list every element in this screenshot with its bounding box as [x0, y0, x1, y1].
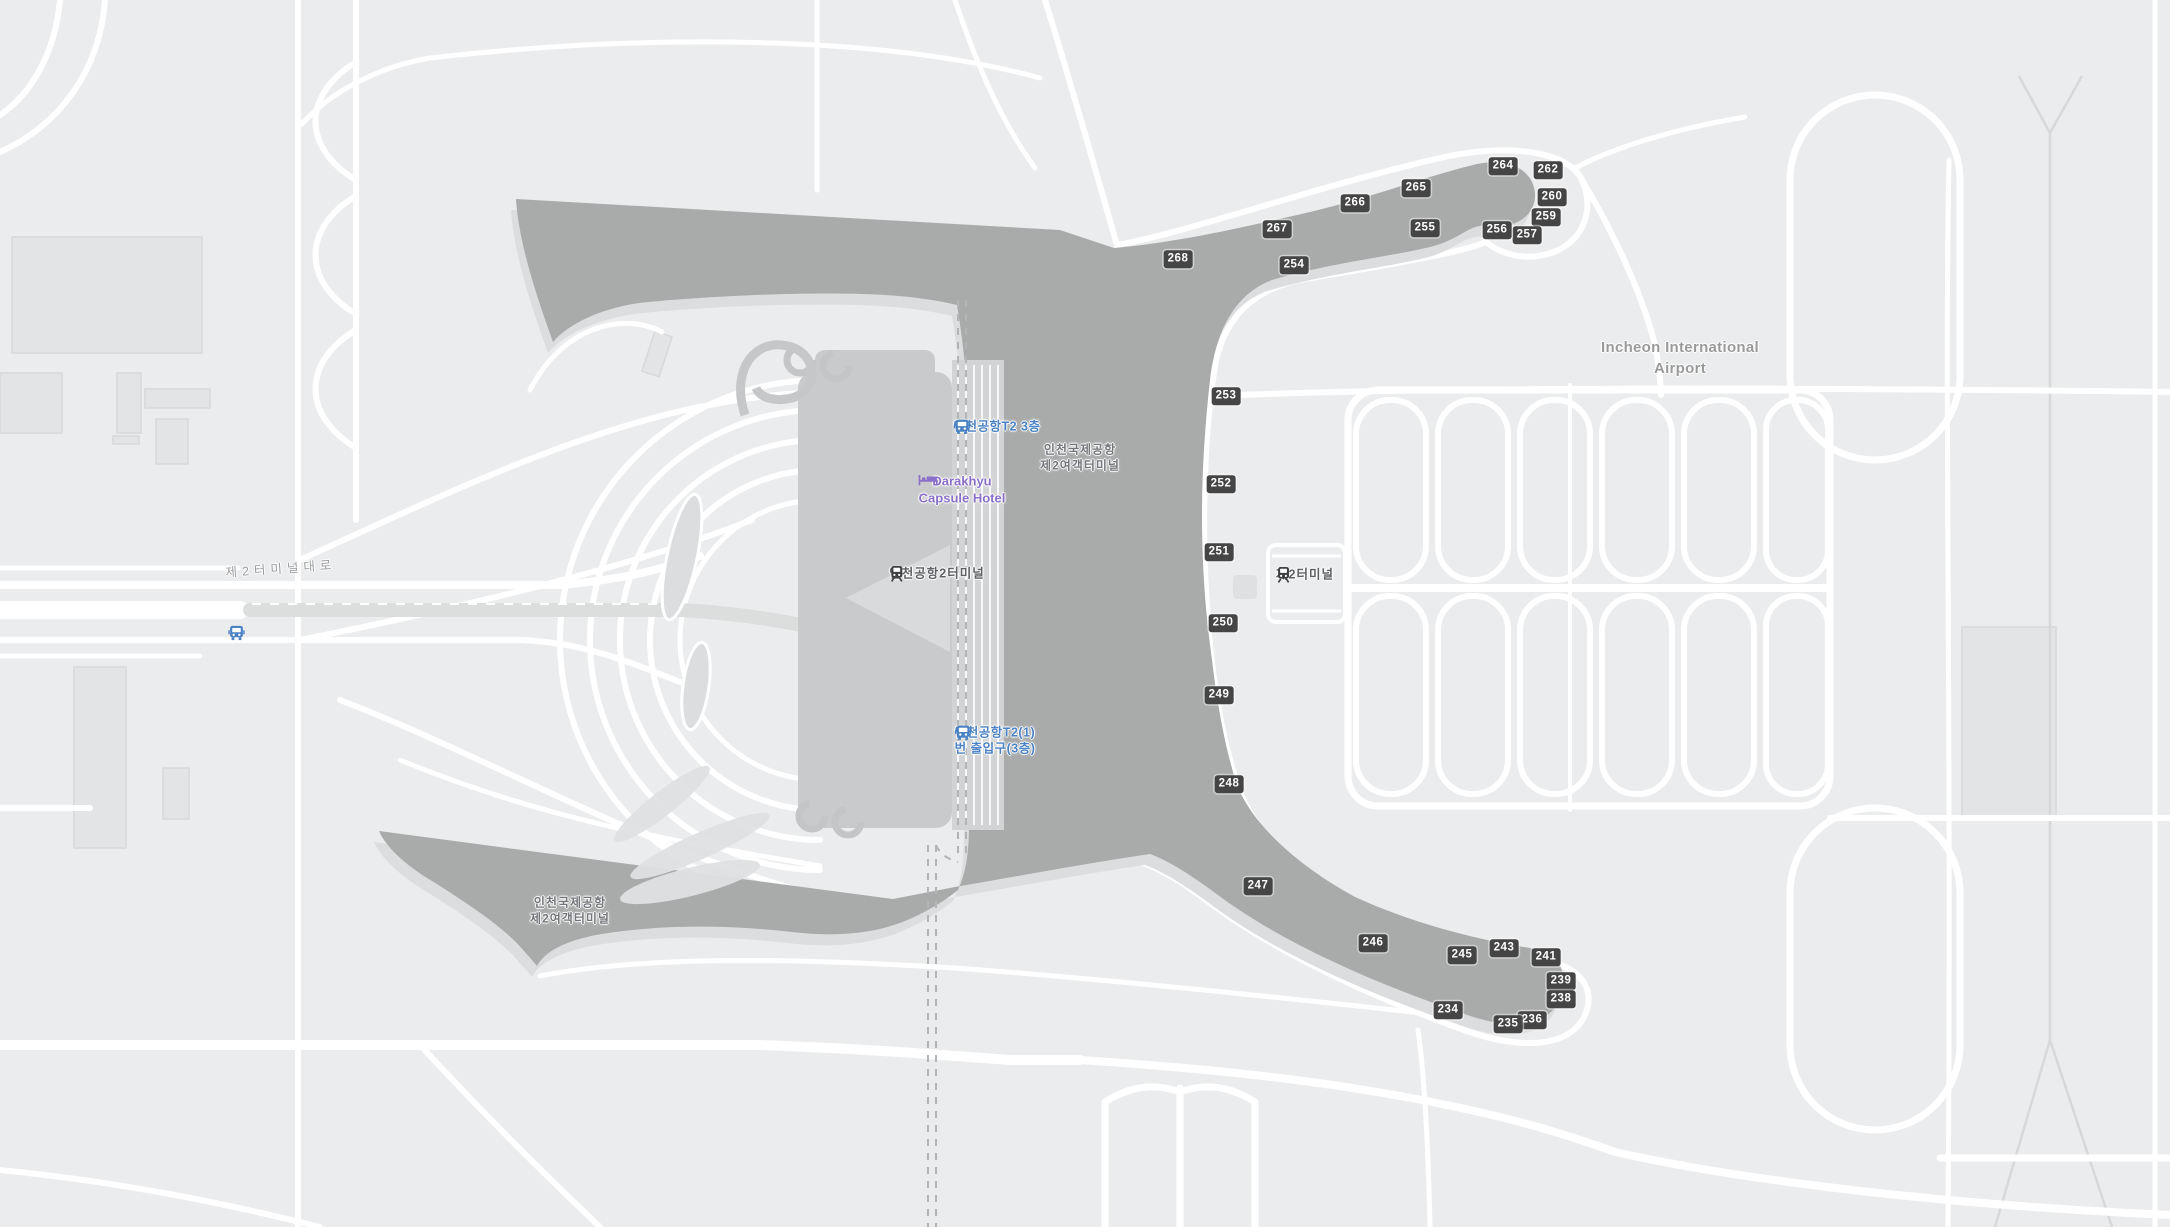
bus-icon: [955, 724, 972, 741]
train-icon: [1276, 566, 1291, 583]
terminal2-parking-station-label[interactable]: 제2터미널: [1276, 566, 1334, 585]
gate-badge-241[interactable]: 241: [1532, 948, 1561, 966]
gate-badge-268[interactable]: 268: [1164, 250, 1193, 268]
label-line: 번 출입구(3층): [955, 741, 1036, 757]
gate-badge-247[interactable]: 247: [1244, 877, 1273, 895]
map-canvas[interactable]: 2682672662652642622602592572562552542532…: [0, 0, 2170, 1227]
gate-badge-260[interactable]: 260: [1538, 188, 1567, 206]
incheon-airport-label[interactable]: Incheon InternationalAirport: [1601, 337, 1759, 379]
darakhyu-capsule-hotel-label[interactable]: DarakhyuCapsule Hotel: [919, 474, 1006, 511]
label-line: 제2여객터미널: [1040, 458, 1120, 474]
gate-badge-252[interactable]: 252: [1207, 475, 1236, 493]
gate-badge-259[interactable]: 259: [1532, 208, 1561, 226]
gate-badge-262[interactable]: 262: [1534, 161, 1563, 179]
gate-badge-265[interactable]: 265: [1402, 179, 1431, 197]
gate-badge-255[interactable]: 255: [1411, 219, 1440, 237]
labels-layer: 2682672662652642622602592572562552542532…: [0, 0, 2170, 1227]
gate-badge-248[interactable]: 248: [1215, 775, 1244, 793]
t2-3f-bus-stop-label[interactable]: 인천공항T2 3층: [953, 418, 1040, 437]
gate-badge-238[interactable]: 238: [1547, 990, 1576, 1008]
gate-badge-246[interactable]: 246: [1359, 934, 1388, 952]
terminal2-station-label[interactable]: 인천공항2터미널: [889, 565, 984, 584]
label-line: Airport: [1601, 358, 1759, 379]
label-line: 제2여객터미널: [530, 911, 610, 927]
gate-badge-250[interactable]: 250: [1209, 614, 1238, 632]
label-line: 인천국제공항: [1040, 442, 1120, 458]
gate-badge-253[interactable]: 253: [1212, 387, 1241, 405]
gate-badge-266[interactable]: 266: [1341, 194, 1370, 212]
bus-icon: [228, 625, 245, 642]
label-line: 제2터미널대로: [225, 557, 337, 581]
gate-badge-235[interactable]: 235: [1494, 1015, 1523, 1033]
bed-icon: [919, 474, 938, 487]
label-line: 인천국제공항: [530, 895, 610, 911]
terminal2-area-label-north: 인천국제공항제2여객터미널: [1040, 442, 1120, 473]
gate-badge-267[interactable]: 267: [1263, 220, 1292, 238]
label-line: Capsule Hotel: [919, 491, 1006, 508]
gate-badge-256[interactable]: 256: [1483, 221, 1512, 239]
gate-badge-257[interactable]: 257: [1513, 226, 1542, 244]
terminal2-area-label-southwest: 인천국제공항제2여객터미널: [530, 895, 610, 926]
bus-icon: [953, 418, 970, 435]
train-icon: [889, 565, 904, 582]
gate-badge-243[interactable]: 243: [1490, 939, 1519, 957]
gate-badge-245[interactable]: 245: [1448, 946, 1477, 964]
label-line: Incheon International: [1601, 337, 1759, 358]
gate-badge-254[interactable]: 254: [1280, 256, 1309, 274]
gate-badge-249[interactable]: 249: [1205, 686, 1234, 704]
terminal2-boulevard-road-label: 제2터미널대로: [225, 557, 337, 581]
t2-gate1-3f-bus-stop-label[interactable]: 인천공항T2(1)번 출입구(3층): [955, 724, 1036, 760]
gate-badge-251[interactable]: 251: [1205, 543, 1234, 561]
gate-badge-239[interactable]: 239: [1547, 972, 1576, 990]
gate-badge-234[interactable]: 234: [1434, 1001, 1463, 1019]
gate-badge-264[interactable]: 264: [1489, 157, 1518, 175]
